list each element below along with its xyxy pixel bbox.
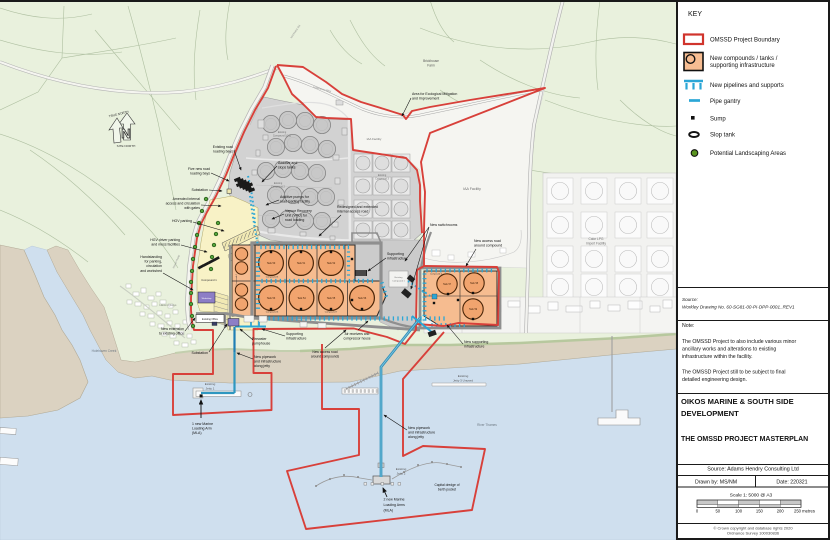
svg-text:Redesigned and extended: Redesigned and extended [337, 205, 378, 209]
svg-text:250 metres: 250 metres [794, 509, 815, 514]
svg-text:detailed engineering design.: detailed engineering design. [682, 377, 747, 383]
svg-text:Five new road: Five new road [188, 167, 210, 171]
svg-text:infrastructure: infrastructure [286, 337, 306, 341]
svg-text:IAA Facility: IAA Facility [367, 137, 382, 141]
svg-text:Vapour Recovery: Vapour Recovery [285, 209, 312, 213]
svg-text:New supporting: New supporting [464, 340, 488, 344]
svg-text:for parking,: for parking, [144, 260, 162, 264]
svg-text:Scale 1: 5000 @ A3: Scale 1: 5000 @ A3 [730, 493, 773, 499]
svg-text:River Thames: River Thames [477, 423, 497, 427]
svg-text:OIKOS MARINE & SOUTH SIDE: OIKOS MARINE & SOUTH SIDE [681, 397, 794, 406]
svg-text:THE OMSSD PROJECT MASTERPLAN: THE OMSSD PROJECT MASTERPLAN [681, 436, 808, 443]
svg-text:Tank 58: Tank 58 [470, 283, 479, 285]
svg-text:internal access road: internal access road [337, 210, 368, 214]
svg-text:New pipework: New pipework [254, 355, 276, 359]
svg-text:New pipelines and supports: New pipelines and supports [710, 83, 784, 89]
svg-text:Calor LPG: Calor LPG [589, 237, 604, 241]
svg-text:Workshop: Workshop [202, 297, 213, 300]
svg-text:Tank 54: Tank 54 [297, 297, 306, 300]
svg-text:Existing: Existing [396, 467, 407, 471]
svg-text:Pipe gantry: Pipe gantry [710, 99, 740, 105]
svg-text:100: 100 [735, 509, 743, 514]
svg-text:around compound: around compound [474, 244, 502, 248]
svg-text:Import Facility: Import Facility [586, 242, 606, 246]
svg-text:along jetty: along jetty [408, 435, 424, 439]
svg-text:circulation: circulation [146, 264, 162, 268]
svg-text:Substation: Substation [191, 188, 208, 192]
svg-text:(MLA): (MLA) [384, 509, 394, 513]
svg-text:loading bays: loading bays [213, 150, 233, 154]
svg-text:Source: Adams Hendry Consultin: Source: Adams Hendry Consulting Ltd [707, 467, 798, 473]
svg-text:Firewater: Firewater [252, 337, 267, 341]
svg-text:and infrastructure: and infrastructure [408, 431, 435, 435]
svg-text:Tank 57: Tank 57 [443, 284, 452, 286]
svg-text:HGV driver parking: HGV driver parking [150, 238, 180, 242]
svg-text:road loading facility: road loading facility [280, 200, 310, 204]
svg-text:Substation: Substation [191, 351, 208, 355]
svg-text:New compounds / tanks /: New compounds / tanks / [710, 56, 778, 62]
svg-text:Jetty 2: Jetty 2 [397, 472, 406, 476]
svg-text:Tank 52: Tank 52 [327, 262, 336, 265]
svg-text:Ordnance Survey 100030836: Ordnance Survey 100030836 [727, 531, 780, 536]
svg-text:Additive and: Additive and [278, 161, 297, 165]
svg-text:Existing road: Existing road [213, 145, 233, 149]
svg-text:IAA Facility: IAA Facility [463, 187, 481, 191]
svg-text:Haven Quays: Haven Quays [160, 303, 178, 307]
svg-text:Tank 51: Tank 51 [297, 262, 306, 265]
svg-text:Jetty 3 Unused: Jetty 3 Unused [453, 379, 473, 383]
svg-text:Tank 56: Tank 56 [358, 297, 367, 300]
svg-text:Tank 59: Tank 59 [469, 309, 478, 311]
svg-text:Loading Arm: Loading Arm [192, 427, 212, 431]
svg-text:Existing: Existing [458, 374, 469, 378]
svg-text:Unit (VRU) for: Unit (VRU) for [285, 214, 308, 218]
svg-text:compressor house: compressor house [343, 337, 370, 341]
svg-text:Workley Drawing No. 60-SG81-00: Workley Drawing No. 60-SG81-00-PI-DPP-00… [682, 305, 795, 310]
svg-text:and infrastructure: and infrastructure [254, 360, 281, 364]
svg-text:Drawn by: MS/NM: Drawn by: MS/NM [695, 480, 737, 486]
svg-text:with gates: with gates [184, 206, 200, 210]
svg-text:DEVELOPMENT: DEVELOPMENT [681, 409, 739, 418]
svg-text:200: 200 [777, 509, 785, 514]
svg-text:Area for Ecological Mitigation: Area for Ecological Mitigation [412, 92, 457, 96]
svg-text:1 new Marine: 1 new Marine [192, 422, 213, 426]
svg-text:Supporting: Supporting [387, 252, 404, 256]
svg-text:KEY: KEY [688, 11, 702, 18]
svg-text:Amended internal: Amended internal [173, 197, 201, 201]
svg-text:Potential Landscaping Areas: Potential Landscaping Areas [710, 151, 786, 157]
svg-text:Air receivers and: Air receivers and [345, 332, 370, 336]
svg-text:Compound 5: Compound 5 [266, 277, 279, 279]
svg-text:The OMSSD Project to also incl: The OMSSD Project to also include variou… [682, 339, 796, 345]
svg-text:Compound 6: Compound 6 [266, 312, 279, 314]
svg-text:Compound 1: Compound 1 [392, 281, 405, 283]
svg-text:2 new Marine: 2 new Marine [384, 498, 405, 502]
svg-text:Loading Arms: Loading Arms [384, 503, 406, 507]
svg-text:berth pocket: berth pocket [438, 488, 456, 492]
svg-text:pumphouse: pumphouse [252, 342, 270, 346]
svg-text:New switchrooms: New switchrooms [430, 223, 458, 227]
svg-text:Existing: Existing [205, 382, 216, 386]
svg-text:New access road: New access road [312, 350, 337, 354]
svg-text:HGV parking: HGV parking [172, 219, 192, 223]
svg-text:Compound 2: Compound 2 [271, 186, 285, 189]
svg-text:Existing Office: Existing Office [202, 318, 219, 321]
svg-text:SITE NORTH: SITE NORTH [117, 144, 136, 148]
svg-text:New access road: New access road [474, 239, 501, 243]
svg-text:Capital dredge of: Capital dredge of [434, 483, 459, 487]
svg-text:Tank 50: Tank 50 [267, 262, 276, 265]
svg-text:ancillary works and alteration: ancillary works and alterations to exist… [682, 347, 776, 353]
svg-text:(MLA): (MLA) [192, 431, 202, 435]
svg-text:infrastructure: infrastructure [464, 345, 484, 349]
svg-text:road loading: road loading [285, 218, 304, 222]
svg-text:Sump: Sump [710, 117, 726, 123]
svg-text:Existing: Existing [395, 276, 403, 279]
svg-text:Farm: Farm [427, 64, 435, 68]
svg-text:New extension: New extension [161, 327, 184, 331]
svg-text:0: 0 [696, 509, 699, 514]
svg-text:OMSSD Project Boundary: OMSSD Project Boundary [710, 38, 780, 44]
svg-text:along jetty: along jetty [254, 364, 270, 368]
svg-text:infrastructure: infrastructure [387, 257, 407, 261]
svg-text:Handstanding: Handstanding [140, 255, 162, 259]
svg-text:Source:: Source: [682, 297, 699, 302]
svg-text:loading bays: loading bays [190, 172, 210, 176]
svg-text:Compound 3: Compound 3 [375, 178, 389, 181]
svg-text:150: 150 [756, 509, 764, 514]
svg-text:Date: 220321: Date: 220321 [776, 480, 807, 486]
svg-text:Compound 1: Compound 1 [201, 278, 217, 282]
svg-text:and workshed: and workshed [140, 269, 162, 273]
svg-text:N: N [121, 126, 130, 141]
svg-text:around compounds: around compounds [311, 355, 340, 359]
svg-text:Tank 53: Tank 53 [267, 297, 276, 300]
svg-text:Jetty 1: Jetty 1 [206, 387, 215, 391]
svg-text:Compound 4: Compound 4 [236, 273, 238, 285]
svg-text:Note:: Note: [682, 323, 694, 329]
svg-text:Additive pumps for: Additive pumps for [280, 195, 310, 199]
svg-text:Tank 55: Tank 55 [327, 297, 336, 300]
svg-text:Slop tank: Slop tank [710, 133, 736, 139]
svg-text:Compound 2: Compound 2 [430, 274, 443, 276]
svg-text:Compound 10/11: Compound 10/11 [273, 135, 292, 138]
svg-text:supporting infrastructure: supporting infrastructure [710, 63, 775, 69]
svg-text:slops tanks: slops tanks [278, 166, 296, 170]
svg-text:Supporting: Supporting [286, 332, 303, 336]
svg-text:Brickhouse: Brickhouse [423, 59, 439, 63]
svg-text:and Improvement: and Improvement [412, 97, 439, 101]
svg-text:and mess facilities: and mess facilities [151, 243, 180, 247]
svg-text:The OMSSD Project still to be: The OMSSD Project still to be subject to… [682, 370, 786, 376]
svg-text:to existing office: to existing office [159, 332, 184, 336]
svg-text:New pipework: New pipework [408, 426, 430, 430]
svg-text:50: 50 [715, 509, 720, 514]
svg-text:Compound 7: Compound 7 [325, 312, 338, 314]
svg-text:Holehaven Creek: Holehaven Creek [92, 349, 117, 353]
svg-text:infrastructure within the faci: infrastructure within the facility. [682, 354, 753, 360]
svg-text:access and circulation: access and circulation [166, 202, 200, 206]
